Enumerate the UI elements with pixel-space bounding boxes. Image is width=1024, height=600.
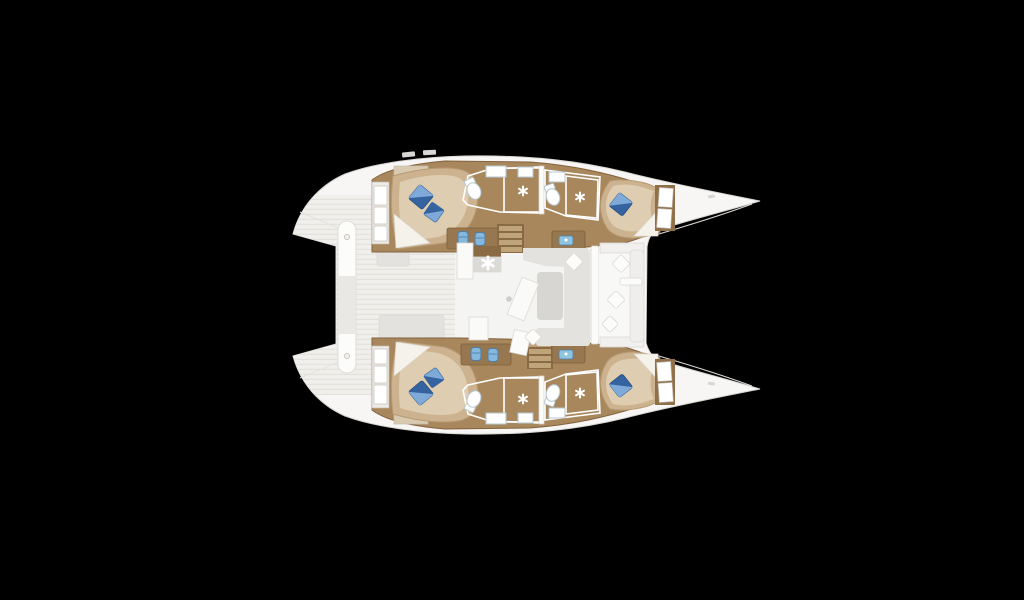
galley-counter [469,317,488,340]
desk-bench [461,344,511,365]
seat-icon [471,348,481,361]
sofa-seat [536,328,590,346]
cockpit-table [620,278,642,285]
deck-cleat-icon [423,150,436,156]
forward-cockpit [599,243,646,347]
seat-icon [488,349,498,362]
screenshot-root [0,0,1024,600]
galley-counter [457,243,473,279]
cockpit-bench [630,250,644,342]
deck-bench [377,251,409,266]
faucet-icon [565,353,568,356]
faucet-icon [565,239,568,242]
table-leg [506,296,512,302]
deck-fitting-icon [344,234,349,239]
galley-cabinet [471,246,501,258]
companionway-steps [497,224,524,253]
seat-icon [458,232,468,245]
seat-icon [475,233,485,246]
salon-table [537,272,563,320]
cockpit-bulkhead [591,246,599,344]
aft-platform [338,221,356,373]
floor-plan-svg [0,0,1024,600]
deck-fitting-icon [344,353,349,358]
